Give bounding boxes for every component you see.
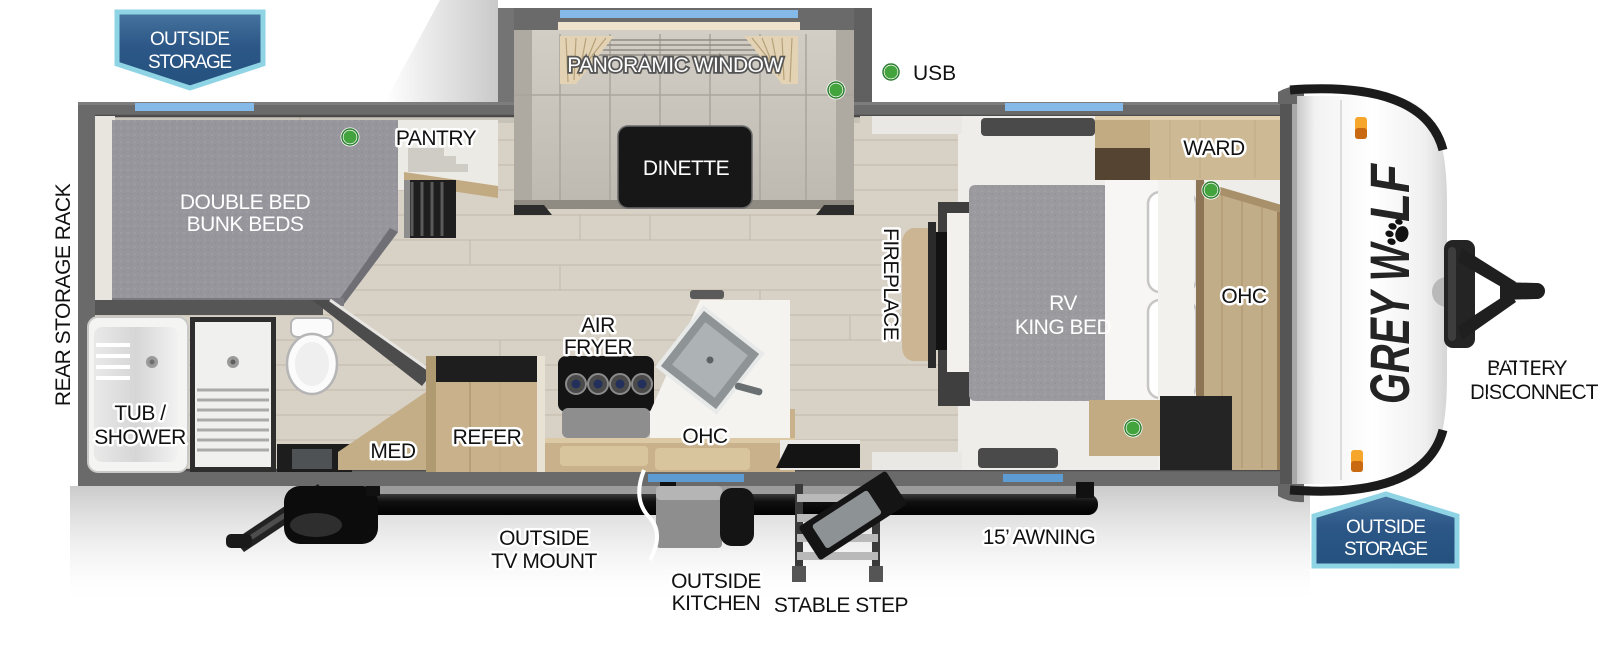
svg-text:TV MOUNT: TV MOUNT bbox=[491, 550, 597, 573]
svg-text:DISCONNECT: DISCONNECT bbox=[1470, 381, 1599, 404]
svg-text:LF: LF bbox=[1358, 162, 1421, 222]
svg-text:DINETTE: DINETTE bbox=[643, 157, 730, 180]
svg-text:FIREPLACE: FIREPLACE bbox=[879, 228, 902, 341]
svg-text:STORAGE: STORAGE bbox=[1344, 539, 1428, 560]
svg-text:STORAGE: STORAGE bbox=[148, 52, 232, 73]
svg-text:OHC: OHC bbox=[1221, 285, 1267, 308]
svg-text:OUTSIDE: OUTSIDE bbox=[671, 570, 761, 593]
svg-text:FRYER: FRYER bbox=[564, 336, 633, 359]
svg-text:BUNK BEDS: BUNK BEDS bbox=[187, 213, 304, 236]
svg-text:AIR: AIR bbox=[581, 314, 615, 337]
svg-text:MED: MED bbox=[370, 440, 416, 463]
svg-text:15’ AWNING: 15’ AWNING bbox=[983, 526, 1095, 549]
svg-text:PANORAMIC WINDOW: PANORAMIC WINDOW bbox=[567, 54, 783, 77]
svg-text:OHC: OHC bbox=[682, 425, 728, 448]
svg-text:DOUBLE BED: DOUBLE BED bbox=[180, 191, 311, 214]
svg-text:REAR STORAGE RACK: REAR STORAGE RACK bbox=[52, 183, 75, 406]
svg-text:RV: RV bbox=[1049, 292, 1077, 315]
svg-text:KING BED: KING BED bbox=[1015, 316, 1112, 339]
svg-text:STABLE STEP: STABLE STEP bbox=[774, 594, 908, 617]
svg-text:REFER: REFER bbox=[453, 426, 522, 449]
svg-text:OUTSIDE: OUTSIDE bbox=[150, 29, 230, 50]
svg-text:GREY W: GREY W bbox=[1358, 241, 1421, 404]
svg-text:USB: USB bbox=[913, 62, 956, 85]
svg-text:OUTSIDE: OUTSIDE bbox=[499, 527, 589, 550]
svg-text:TUB /: TUB / bbox=[114, 402, 166, 425]
svg-text:SHOWER: SHOWER bbox=[94, 426, 186, 449]
svg-text:PANTRY: PANTRY bbox=[396, 127, 477, 150]
svg-text:KITCHEN: KITCHEN bbox=[672, 592, 761, 615]
svg-text:BATTERY: BATTERY bbox=[1487, 357, 1567, 380]
svg-text:WARD: WARD bbox=[1183, 137, 1245, 160]
svg-text:OUTSIDE: OUTSIDE bbox=[1346, 517, 1426, 538]
